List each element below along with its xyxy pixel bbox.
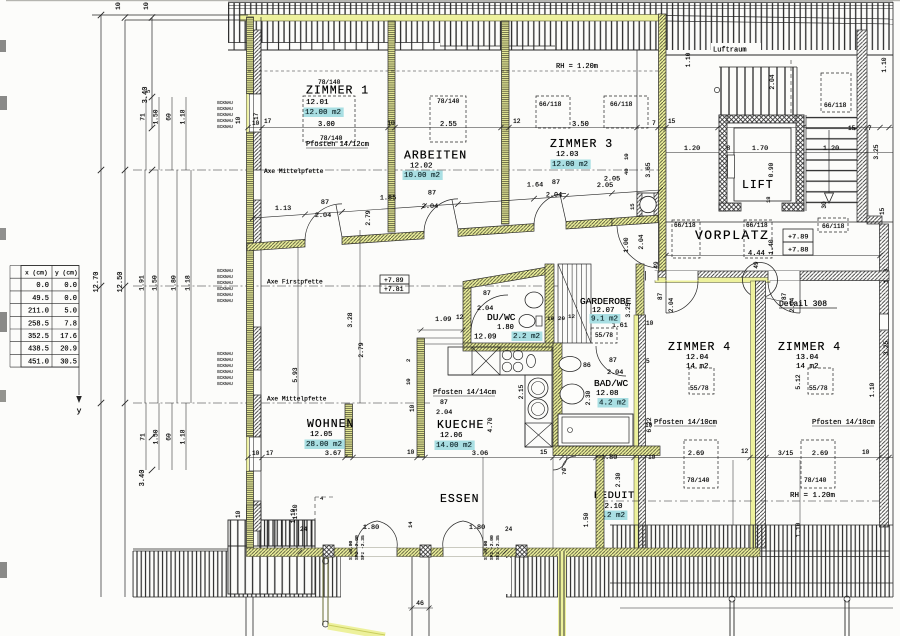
svg-text:Luftraum: Luftraum [713, 47, 747, 55]
svg-text:10: 10 [387, 120, 395, 127]
svg-text:12.06: 12.06 [440, 432, 463, 440]
svg-text:GARDEROBE: GARDEROBE [580, 296, 632, 307]
svg-text:SPz -2.00: SPz -2.00 [354, 535, 360, 560]
svg-text:12.02: 12.02 [410, 163, 433, 171]
svg-text:12.00 m2: 12.00 m2 [552, 161, 588, 169]
svg-text:71: 71 [140, 433, 147, 441]
svg-text:y (cm): y (cm) [55, 270, 78, 277]
svg-text:10: 10 [623, 153, 630, 160]
svg-text:451.0: 451.0 [28, 358, 49, 366]
svg-text:4.44: 4.44 [748, 250, 765, 258]
svg-text:2.04: 2.04 [638, 234, 645, 249]
svg-text:1.10: 1.10 [290, 508, 297, 523]
svg-text:ZIMMER 1: ZIMMER 1 [306, 85, 369, 98]
svg-text:+7.89: +7.89 [788, 234, 808, 242]
svg-text:VORPLATZ: VORPLATZ [695, 228, 769, 243]
svg-text:12.05: 12.05 [310, 431, 333, 439]
svg-text:7: 7 [868, 125, 872, 132]
svg-text:1.00: 1.00 [623, 237, 630, 252]
svg-text:2: 2 [405, 359, 412, 362]
svg-text:18: 18 [765, 196, 772, 203]
svg-text:15: 15 [879, 207, 886, 215]
svg-text:1.80: 1.80 [363, 524, 379, 532]
svg-text:1.10: 1.10 [881, 57, 888, 72]
svg-text:KUECHE: KUECHE [437, 419, 484, 432]
svg-text:ARBEITEN: ARBEITEN [404, 150, 467, 163]
svg-text:3.06: 3.06 [472, 450, 488, 458]
svg-text:SFz -2.35: SFz -2.35 [495, 535, 501, 560]
svg-text:352.5: 352.5 [28, 333, 49, 341]
svg-text:12.03: 12.03 [556, 151, 579, 159]
svg-text:2.69: 2.69 [688, 450, 704, 458]
svg-text:3.50: 3.50 [572, 121, 589, 129]
svg-text:BCKNAU: BCKNAU [217, 352, 233, 357]
svg-text:49: 49 [653, 261, 660, 269]
svg-text:60: 60 [166, 433, 173, 441]
svg-text:66/118: 66/118 [746, 222, 768, 229]
svg-text:2.04: 2.04 [789, 297, 796, 312]
svg-text:2.05: 2.05 [597, 182, 613, 190]
svg-text:y: y [77, 407, 82, 416]
svg-text:24: 24 [300, 526, 308, 533]
svg-text:12.70: 12.70 [93, 271, 101, 292]
svg-text:1.80: 1.80 [497, 324, 514, 332]
svg-text:Axe Mittelpfette: Axe Mittelpfette [267, 396, 327, 403]
svg-text:15: 15 [668, 118, 676, 125]
svg-text:5.12: 5.12 [795, 374, 802, 389]
svg-text:BCKNAU: BCKNAU [217, 269, 233, 274]
svg-text:2.30: 2.30 [585, 390, 592, 405]
svg-text:Axe Firstpfette: Axe Firstpfette [267, 279, 323, 286]
svg-text:3.28: 3.28 [347, 312, 354, 327]
svg-text:Axe Mittelpfette: Axe Mittelpfette [264, 168, 324, 175]
svg-text:SFz -2.35: SFz -2.35 [360, 535, 366, 560]
svg-text:12.04: 12.04 [686, 354, 709, 362]
svg-text:BAD/WC: BAD/WC [594, 378, 629, 389]
svg-text:0.90: 0.90 [768, 162, 775, 177]
svg-text:55/78: 55/78 [809, 385, 828, 392]
svg-text:BCKNAU: BCKNAU [217, 107, 233, 112]
svg-text:1.85: 1.85 [380, 195, 396, 203]
svg-text:49.5: 49.5 [32, 295, 49, 303]
svg-text:5: 5 [145, 90, 152, 93]
svg-text:+7.88: +7.88 [788, 247, 808, 255]
svg-text:60: 60 [166, 113, 173, 121]
svg-text:5.0: 5.0 [64, 308, 77, 316]
svg-text:10: 10 [862, 449, 870, 456]
svg-text:3.25: 3.25 [883, 340, 890, 355]
svg-text:12.08: 12.08 [596, 390, 619, 398]
svg-text:DU/WC: DU/WC [487, 312, 516, 323]
svg-text:10: 10 [143, 2, 150, 10]
svg-text:7: 7 [652, 120, 656, 127]
svg-text:2.04: 2.04 [315, 212, 331, 220]
svg-text:2.04: 2.04 [607, 369, 623, 377]
svg-text:2.79: 2.79 [358, 342, 365, 357]
svg-text:S =0.00: S =0.00 [483, 540, 489, 560]
svg-text:BCKNAU: BCKNAU [217, 287, 233, 292]
svg-text:10: 10 [646, 320, 654, 327]
svg-text:17: 17 [253, 112, 260, 120]
svg-text:1.70: 1.70 [752, 145, 768, 153]
svg-text:BCKNAU: BCKNAU [217, 113, 233, 118]
svg-text:LIFT: LIFT [742, 179, 774, 192]
svg-text:1.40: 1.40 [768, 239, 775, 254]
svg-text:66/118: 66/118 [822, 223, 845, 230]
svg-text:0.0: 0.0 [64, 282, 77, 290]
svg-text:BCKNAU: BCKNAU [217, 370, 233, 375]
svg-text:1.18: 1.18 [180, 109, 187, 124]
svg-text:7.8: 7.8 [64, 320, 77, 328]
svg-text:RH = 1.20m: RH = 1.20m [790, 492, 836, 500]
svg-text:ZIMMER 3: ZIMMER 3 [550, 138, 613, 151]
svg-text:+7.89: +7.89 [384, 277, 404, 284]
svg-text:17: 17 [264, 118, 272, 125]
svg-text:4.70: 4.70 [487, 417, 494, 432]
svg-text:BCKNAU: BCKNAU [217, 101, 233, 106]
svg-text:55/78: 55/78 [690, 385, 709, 392]
svg-text:12: 12 [456, 314, 464, 321]
svg-text:2.55: 2.55 [440, 121, 457, 129]
svg-text:78/140: 78/140 [687, 477, 710, 484]
svg-text:2.04: 2.04 [769, 74, 776, 89]
svg-text:66/118: 66/118 [610, 101, 633, 108]
svg-text:78/140: 78/140 [804, 477, 827, 484]
svg-text:10: 10 [115, 2, 122, 10]
svg-text:211.0: 211.0 [28, 308, 49, 316]
svg-text:10: 10 [645, 422, 653, 429]
svg-text:17: 17 [266, 450, 274, 457]
svg-text:1.50: 1.50 [152, 275, 159, 291]
svg-text:87: 87 [657, 292, 664, 300]
svg-text:ESSEN: ESSEN [440, 493, 480, 506]
svg-text:S =0.00: S =0.00 [348, 540, 354, 560]
svg-text:1.13: 1.13 [275, 205, 291, 213]
svg-text:10: 10 [252, 120, 260, 127]
svg-text:14 m2: 14 m2 [796, 363, 819, 371]
svg-text:2.79: 2.79 [365, 210, 372, 225]
svg-text:10: 10 [405, 378, 412, 385]
svg-text:x (cm): x (cm) [25, 270, 48, 277]
svg-text:14: 14 [407, 521, 414, 528]
svg-text:87: 87 [781, 292, 788, 300]
svg-text:3.67: 3.67 [325, 450, 341, 458]
svg-text:BCKNAU: BCKNAU [217, 299, 233, 304]
svg-text:1.10: 1.10 [685, 52, 692, 67]
svg-text:66/118: 66/118 [824, 102, 847, 109]
svg-text:13.04: 13.04 [796, 354, 819, 362]
svg-text:86: 86 [583, 362, 591, 369]
svg-text:10: 10 [409, 404, 416, 412]
svg-text:87: 87 [609, 357, 617, 364]
svg-text:30.5: 30.5 [60, 358, 77, 366]
svg-text:BCKNAU: BCKNAU [217, 358, 233, 363]
svg-text:12.01: 12.01 [306, 99, 329, 107]
svg-text:1.64: 1.64 [527, 182, 543, 190]
svg-text:12.09: 12.09 [474, 334, 497, 342]
svg-text:12.50: 12.50 [117, 271, 125, 292]
svg-text:20: 20 [558, 315, 565, 322]
svg-text:10.00 m2: 10.00 m2 [404, 172, 440, 180]
svg-text:12: 12 [513, 118, 521, 125]
svg-text:10: 10 [235, 510, 242, 518]
svg-text:66/118: 66/118 [539, 101, 562, 108]
svg-text:12.07: 12.07 [592, 307, 615, 315]
svg-text:RH = 1.20m: RH = 1.20m [556, 63, 598, 71]
svg-text:+7.81: +7.81 [384, 286, 404, 293]
svg-text:1.50: 1.50 [583, 512, 590, 527]
svg-text:BCKNAU: BCKNAU [217, 275, 233, 280]
svg-text:71: 71 [140, 113, 147, 121]
svg-text:14 m2: 14 m2 [686, 363, 709, 371]
svg-text:BCKNAU: BCKNAU [217, 382, 233, 387]
svg-text:1.50: 1.50 [153, 109, 160, 124]
svg-text:2.04: 2.04 [546, 191, 562, 199]
svg-text:10: 10 [407, 449, 415, 456]
svg-text:87: 87 [428, 190, 436, 198]
svg-text:ZIMMER 4: ZIMMER 4 [668, 341, 731, 354]
svg-text:5: 5 [646, 358, 650, 365]
svg-text:1.09: 1.09 [435, 316, 451, 324]
svg-text:3.40: 3.40 [139, 470, 147, 487]
svg-text:12.00 m2: 12.00 m2 [305, 109, 341, 117]
svg-text:BCKNAU: BCKNAU [217, 281, 233, 286]
svg-text:49: 49 [753, 261, 760, 269]
svg-text:12: 12 [568, 313, 575, 320]
svg-text:2.04: 2.04 [477, 305, 493, 313]
svg-text:46: 46 [416, 600, 424, 607]
svg-text:1.20: 1.20 [684, 145, 700, 153]
svg-text:87: 87 [321, 199, 329, 207]
svg-text:70: 70 [561, 468, 568, 475]
svg-text:438.5: 438.5 [28, 346, 49, 354]
svg-text:1.80: 1.80 [469, 524, 485, 532]
svg-text:19: 19 [547, 315, 554, 322]
svg-text:2.04: 2.04 [436, 409, 452, 417]
svg-text:24: 24 [505, 526, 513, 533]
svg-text:BCKNAU: BCKNAU [217, 364, 233, 369]
svg-text:2.2 m2: 2.2 m2 [513, 333, 540, 341]
svg-text:1.18: 1.18 [180, 429, 187, 444]
svg-text:87: 87 [440, 399, 448, 406]
svg-text:10: 10 [235, 116, 242, 124]
svg-text:3.00: 3.00 [318, 121, 335, 129]
svg-text:2.30: 2.30 [615, 472, 622, 487]
svg-text:BCKNAU: BCKNAU [217, 376, 233, 381]
svg-text:2.15: 2.15 [518, 384, 525, 399]
svg-text:9.1 m2: 9.1 m2 [591, 316, 618, 324]
svg-text:14.00 m2: 14.00 m2 [436, 442, 472, 450]
svg-text:BCKNAU: BCKNAU [217, 119, 233, 124]
svg-text:28.00 m2: 28.00 m2 [306, 441, 342, 449]
svg-text:1.18: 1.18 [185, 275, 192, 291]
svg-text:258.5: 258.5 [28, 320, 49, 328]
svg-text:15: 15 [629, 203, 636, 210]
svg-text:3.25: 3.25 [873, 144, 880, 159]
svg-text:3.65: 3.65 [645, 162, 652, 177]
svg-text:55/78: 55/78 [595, 332, 613, 339]
svg-text:78/140: 78/140 [437, 98, 460, 105]
svg-text:3/15: 3/15 [778, 450, 793, 457]
svg-text:1.80: 1.80 [171, 275, 178, 291]
svg-text:17.6: 17.6 [60, 333, 77, 341]
svg-text:2.04: 2.04 [422, 203, 438, 211]
svg-text:78/140: 78/140 [318, 79, 341, 86]
svg-text:WOHNEN: WOHNEN [307, 418, 354, 431]
svg-text:BCKNAU: BCKNAU [217, 125, 233, 130]
svg-text:87: 87 [552, 179, 560, 187]
svg-text:ZIMMER 4: ZIMMER 4 [778, 341, 841, 354]
svg-text:2.04: 2.04 [668, 297, 675, 312]
svg-text:0.0: 0.0 [36, 282, 49, 290]
svg-text:40: 40 [623, 168, 630, 175]
svg-text:0.0: 0.0 [64, 295, 77, 303]
svg-text:30: 30 [821, 201, 828, 209]
svg-text:87: 87 [483, 290, 491, 297]
svg-text:2.69: 2.69 [812, 450, 828, 458]
svg-text:10: 10 [252, 450, 260, 457]
svg-text:20.9: 20.9 [60, 346, 77, 354]
svg-text:15: 15 [848, 125, 856, 132]
svg-text:BCKNAU: BCKNAU [217, 293, 233, 298]
svg-text:12: 12 [741, 448, 749, 455]
svg-text:1.50: 1.50 [153, 429, 160, 444]
svg-text:66/118: 66/118 [674, 222, 696, 229]
svg-text:1.91: 1.91 [139, 275, 146, 291]
svg-text:15: 15 [540, 449, 548, 456]
svg-text:SPz -2.00: SPz -2.00 [489, 535, 495, 560]
svg-text:4.2 m2: 4.2 m2 [599, 400, 626, 408]
svg-text:1.10: 1.10 [869, 382, 876, 397]
